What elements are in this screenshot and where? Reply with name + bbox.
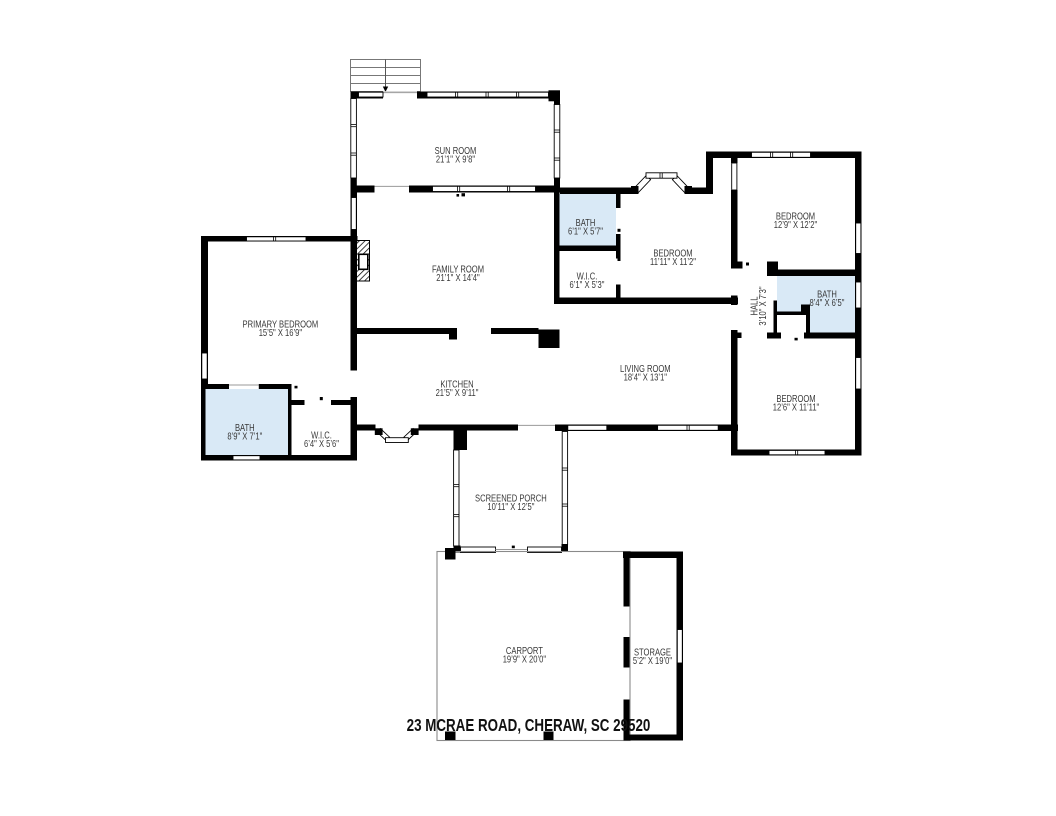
svg-text:23 MCRAE ROAD, CHERAW, SC 2952: 23 MCRAE ROAD, CHERAW, SC 29520: [407, 716, 651, 735]
svg-text:CARPORT19’9" X 20’0": CARPORT19’9" X 20’0": [503, 645, 546, 665]
svg-text:W.I.C.6’4" X 5’6": W.I.C.6’4" X 5’6": [304, 429, 339, 449]
svg-text:STORAGE5’2" X 19’0": STORAGE5’2" X 19’0": [633, 646, 672, 666]
svg-text:FAMILY ROOM21’1" X 14’4": FAMILY ROOM21’1" X 14’4": [432, 263, 484, 283]
svg-text:W.I.C.6’1" X 5’3": W.I.C.6’1" X 5’3": [570, 270, 605, 290]
svg-text:SCREENED PORCH10’11" X 12’5": SCREENED PORCH10’11" X 12’5": [475, 492, 547, 512]
svg-text:PRIMARY BEDROOM15’5" X 16’9": PRIMARY BEDROOM15’5" X 16’9": [243, 318, 319, 338]
svg-text:LIVING ROOM18’4" X 13’1": LIVING ROOM18’4" X 13’1": [620, 363, 671, 383]
svg-text:BEDROOM12’6" X 11’11": BEDROOM12’6" X 11’11": [773, 393, 820, 413]
svg-text:BEDROOM11’11" X 11’2": BEDROOM11’11" X 11’2": [650, 247, 696, 267]
svg-text:SUN ROOM21’1" X 9’8": SUN ROOM21’1" X 9’8": [435, 145, 477, 165]
svg-text:KITCHEN21’5" X 9’11": KITCHEN21’5" X 9’11": [436, 378, 479, 398]
svg-text:HALL3’10" X 7’3": HALL3’10" X 7’3": [748, 286, 768, 325]
svg-text:BEDROOM12’9" X 12’2": BEDROOM12’9" X 12’2": [774, 210, 817, 230]
